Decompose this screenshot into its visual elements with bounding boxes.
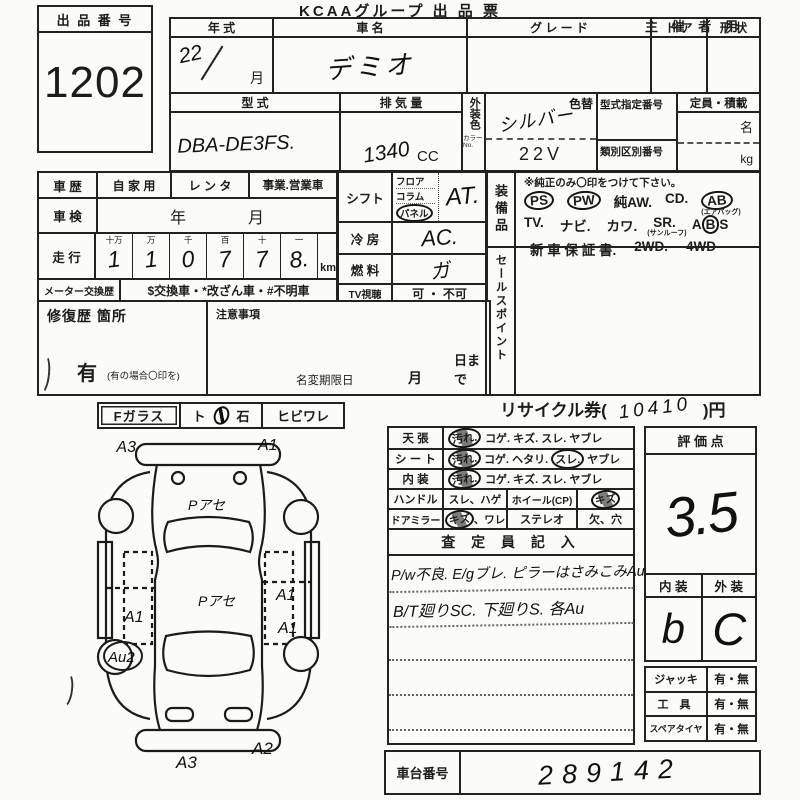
capacity-divider (678, 142, 759, 144)
shape-label: 形 状 (708, 19, 759, 38)
inspector-notes-header: 査 定 員 記 入 (389, 528, 633, 556)
color-code-value: 22V (486, 144, 596, 165)
equipment-ps: PS (523, 190, 554, 211)
color-no-label: カラーNo. (463, 132, 484, 149)
year-month-suffix: 月 (250, 68, 264, 88)
color-cell-divider (486, 138, 596, 140)
front-glass-crack-option: ヒビワレ (261, 402, 345, 429)
inspector-note-line (389, 731, 633, 743)
mileage-digit: 1 (95, 244, 134, 275)
inspection-month-suffix: 月 (248, 204, 264, 228)
door-label: ド ア (652, 19, 706, 38)
mirror-scratch-marked: キズ (444, 508, 475, 530)
cooling-label: 冷 房 (339, 223, 393, 253)
jack-options: 有・無 (708, 668, 755, 691)
chassis-number-box: 車台番号 289142 (384, 750, 761, 795)
shift-option-floor: フロア (396, 174, 435, 189)
displacement-value: 1340 (362, 137, 412, 168)
wheel-label: ホイール(CP) (508, 490, 578, 508)
front-glass-stone-a: ト (192, 406, 205, 425)
front-left-wheel (99, 499, 133, 533)
meter-history-text: $交換車・*改ざん車・#不明車 (121, 280, 336, 300)
tv-label: TV視聴 (339, 285, 393, 302)
name-change-deadline-label: 名変期限日 (296, 372, 354, 388)
wheel-scratch-marked: キズ (590, 488, 621, 510)
equipment-abs-s: S (719, 217, 728, 232)
equipment-navi: ナビ. (560, 215, 591, 235)
class-number-label: 類別区別番号 (598, 141, 676, 170)
grade-label: グ レ ー ド (468, 19, 650, 38)
lot-number-label: 出 品 番 号 (39, 7, 151, 33)
front-glass-label: Fガラス (97, 402, 181, 429)
equipment-leather: カワ. (607, 215, 638, 235)
car-damage-diagram: A3 A1 Pアセ Pアセ A1 A1 A1 Au2 A3 A2 (50, 430, 365, 790)
lot-number-value: 1202 (39, 33, 151, 133)
inspector-note-line (389, 626, 633, 661)
equipment-sunroof-sub: (サンルーフ) (647, 228, 686, 238)
seat-label: シ ー ト (389, 450, 444, 468)
exterior-score-label: 外 装 (703, 575, 756, 596)
lot-number-box: 出 品 番 号 1202 (37, 5, 153, 153)
ceiling-label: 天 張 (389, 428, 444, 448)
caution-label: 注意事項 (208, 302, 489, 322)
equipment-alloy-wheels: 純AW. (614, 191, 652, 211)
history-table: 車 歴 自 家 用 レ ン タ 事業.営業車 車 検 年 月 走 行 十万 1 … (37, 171, 338, 302)
vehicle-table-row1: 年 式 22 月 車 名 デミオ グ レ ー ド ド ア 形 状 (169, 17, 761, 94)
recycle-fee-line: リサイクル券( 10410 )円 (500, 396, 765, 421)
equipment-cd: CD. (665, 191, 688, 206)
auction-sheet: KCAAグループ 出 品 票 主 催 者 用 出 品 番 号 1202 年 式 … (0, 0, 800, 800)
inspector-note-line (389, 696, 633, 731)
inspection-year-suffix: 年 (170, 204, 186, 228)
repair-note: (有の場合〇印を) (107, 368, 180, 382)
spec-table: シフト フロア コラム パネル AT. 冷 房 AC. 燃 料 ガ TV視聴 可… (337, 171, 488, 302)
stereo-options: 欠、穴 (578, 510, 633, 528)
fuel-label: 燃 料 (339, 255, 393, 283)
caution-box: 注意事項 名変期限日 月 日まで (206, 300, 491, 396)
type-cert-label: 型式指定番号 (598, 94, 676, 141)
equipment-tv: TV. (524, 215, 544, 230)
mileage-digit: 1 (132, 244, 171, 275)
shift-value: AT. (437, 171, 488, 223)
tools-options: 有・無 (708, 693, 755, 716)
equipment-label: 装備品 (491, 184, 510, 235)
capacity-label: 定員・積載 (678, 94, 759, 113)
mileage-digit: 8. (280, 244, 319, 275)
equipment-abs-a: A (692, 217, 702, 232)
car-history-business: 事業.営業車 (250, 173, 336, 197)
mileage-label: 走 行 (39, 234, 96, 278)
left-door-panel-dashed (124, 552, 152, 644)
shift-label: シフト (339, 173, 393, 221)
rear-right-wheel (284, 637, 318, 671)
damage-label-front-left: A3 (115, 439, 136, 456)
displacement-label: 排 気 量 (341, 94, 461, 113)
seat-options-rest: ヤブレ (587, 451, 620, 467)
interior-label: 内 装 (389, 470, 444, 488)
inspector-note-line: B/T廻りSC. 下廻りS. 各Au (389, 589, 634, 628)
spare-tire-label: スペアタイヤ (646, 717, 708, 740)
recycle-fee-value: 10410 (606, 392, 704, 426)
tools-label: 工 具 (646, 693, 708, 716)
car-top-view: A3 A1 Pアセ Pアセ A1 A1 A1 Au2 A3 A2 (50, 430, 365, 790)
inspection-label: 車 検 (39, 199, 98, 232)
interior-score-value: b (646, 598, 703, 660)
accessories-table: ジャッキ 有・無 工 具 有・無 スペアタイヤ 有・無 (644, 666, 757, 742)
recycle-fee-prefix: リサイクル券( (500, 396, 607, 421)
seat-wear-marked: スレ. (551, 449, 584, 469)
inspector-note-line (389, 661, 633, 696)
chassis-number-label: 車台番号 (386, 752, 461, 793)
condition-table: 天 張 汚れ. コゲ. キズ. スレ. ヤブレ シ ー ト 汚れ. コゲ. ヘタ… (387, 426, 635, 745)
year-label: 年 式 (171, 19, 272, 38)
mileage-digit: 7 (206, 244, 245, 275)
equipment-airbag-sub: (エアバッグ) (701, 207, 740, 217)
damage-label-hood: Pアセ (188, 497, 226, 513)
seat-options-mid: コゲ. ヘタリ. (484, 451, 548, 467)
steering-options: スレ、ハゲ (444, 490, 508, 508)
overall-score-value: 3.5 (640, 450, 761, 579)
stereo-label: ステレオ (508, 510, 578, 528)
exterior-score-value: C (701, 597, 757, 662)
mileage-unit: km (318, 234, 336, 278)
exterior-color-label: 外装色 (468, 97, 480, 130)
sales-point-label: セールスポイント (493, 254, 509, 394)
equipment-abs: ABS (692, 215, 729, 234)
mileage-digit: 7 (243, 244, 282, 275)
car-history-private: 自 家 用 (98, 173, 172, 197)
damage-label-left-door: A1 (123, 609, 144, 626)
recycle-fee-suffix: )円 (703, 396, 726, 421)
damage-label-right-rear-door: A1 (277, 620, 298, 637)
mirror-options-rest: 、ワレ (474, 512, 506, 527)
repair-yes-option: 有 (77, 357, 97, 386)
capacity-persons-unit: 名 (740, 117, 753, 136)
jack-label: ジャッキ (646, 668, 708, 691)
car-history-rental: レ ン タ (172, 173, 250, 197)
equipment-box: 装備品 ※純正のみ〇印をつけて下さい。 PS PW 純AW. CD. AB (エ… (485, 171, 761, 248)
sales-point-box: セールスポイント (485, 246, 761, 396)
deadline-month-suffix: 月 (408, 368, 422, 388)
equipment-abs-b: B (702, 215, 720, 234)
exterior-color-value: シルバー (496, 100, 575, 138)
year-value: 22 (177, 41, 205, 69)
shift-option-panel: パネル (396, 204, 433, 222)
damage-label-rear-wheel: Au2 (107, 649, 135, 666)
damage-label-front-right: A1 (257, 437, 278, 454)
capacity-kg-unit: kg (740, 152, 753, 166)
car-name-value: デミオ (272, 31, 467, 99)
ceiling-dirt-marked: 汚れ. (447, 426, 482, 449)
damage-label-roof: Pアセ (198, 593, 236, 609)
damage-label-rear-right: A2 (251, 739, 273, 758)
front-glass-stone-b: 石 (237, 406, 250, 425)
repair-history-label: 修復歴 箇所 (39, 302, 206, 326)
front-right-wheel (284, 500, 318, 534)
meter-history-label: メーター交換歴 (39, 280, 121, 300)
spare-tire-options: 有・無 (708, 717, 755, 740)
shift-option-column: コラム (396, 189, 435, 204)
mileage-digit: 0 (169, 244, 208, 275)
score-box: 評 価 点 3.5 内 装 外 装 b C (644, 426, 757, 662)
stone-chip-mark (210, 404, 231, 427)
inspector-note-line: P/w不良. E/gブレ. ピラーはさみこみAu (389, 554, 634, 593)
displacement-unit: CC (417, 148, 439, 165)
door-mirror-label: ドアミラー (389, 510, 444, 528)
front-glass-row: Fガラス ト 石 ヒビワレ (97, 402, 345, 429)
vehicle-table-row2: 型 式 DBA-DE3FS. 排 気 量 1340 CC 外装色 カラーNo. … (169, 92, 761, 172)
ceiling-options: コゲ. キズ. スレ. ヤブレ (485, 430, 602, 446)
model-code-value: DBA-DE3FS. (170, 110, 339, 159)
car-history-label: 車 歴 (39, 173, 98, 197)
damage-label-right-door: A1 (275, 587, 296, 604)
deadline-day-suffix: 日まで (454, 350, 489, 388)
interior-options: コゲ. キズ. スレ. ヤブレ (485, 471, 602, 487)
repair-history-box: 修復歴 箇所 有 (有の場合〇印を) (37, 300, 208, 396)
chassis-number-value: 289142 (460, 744, 760, 800)
damage-label-rear-left: A3 (175, 753, 197, 772)
equipment-note: ※純正のみ〇印をつけて下さい。 (524, 175, 755, 190)
equipment-pw: PW (566, 190, 601, 211)
steering-label: ハンドル (389, 490, 444, 508)
